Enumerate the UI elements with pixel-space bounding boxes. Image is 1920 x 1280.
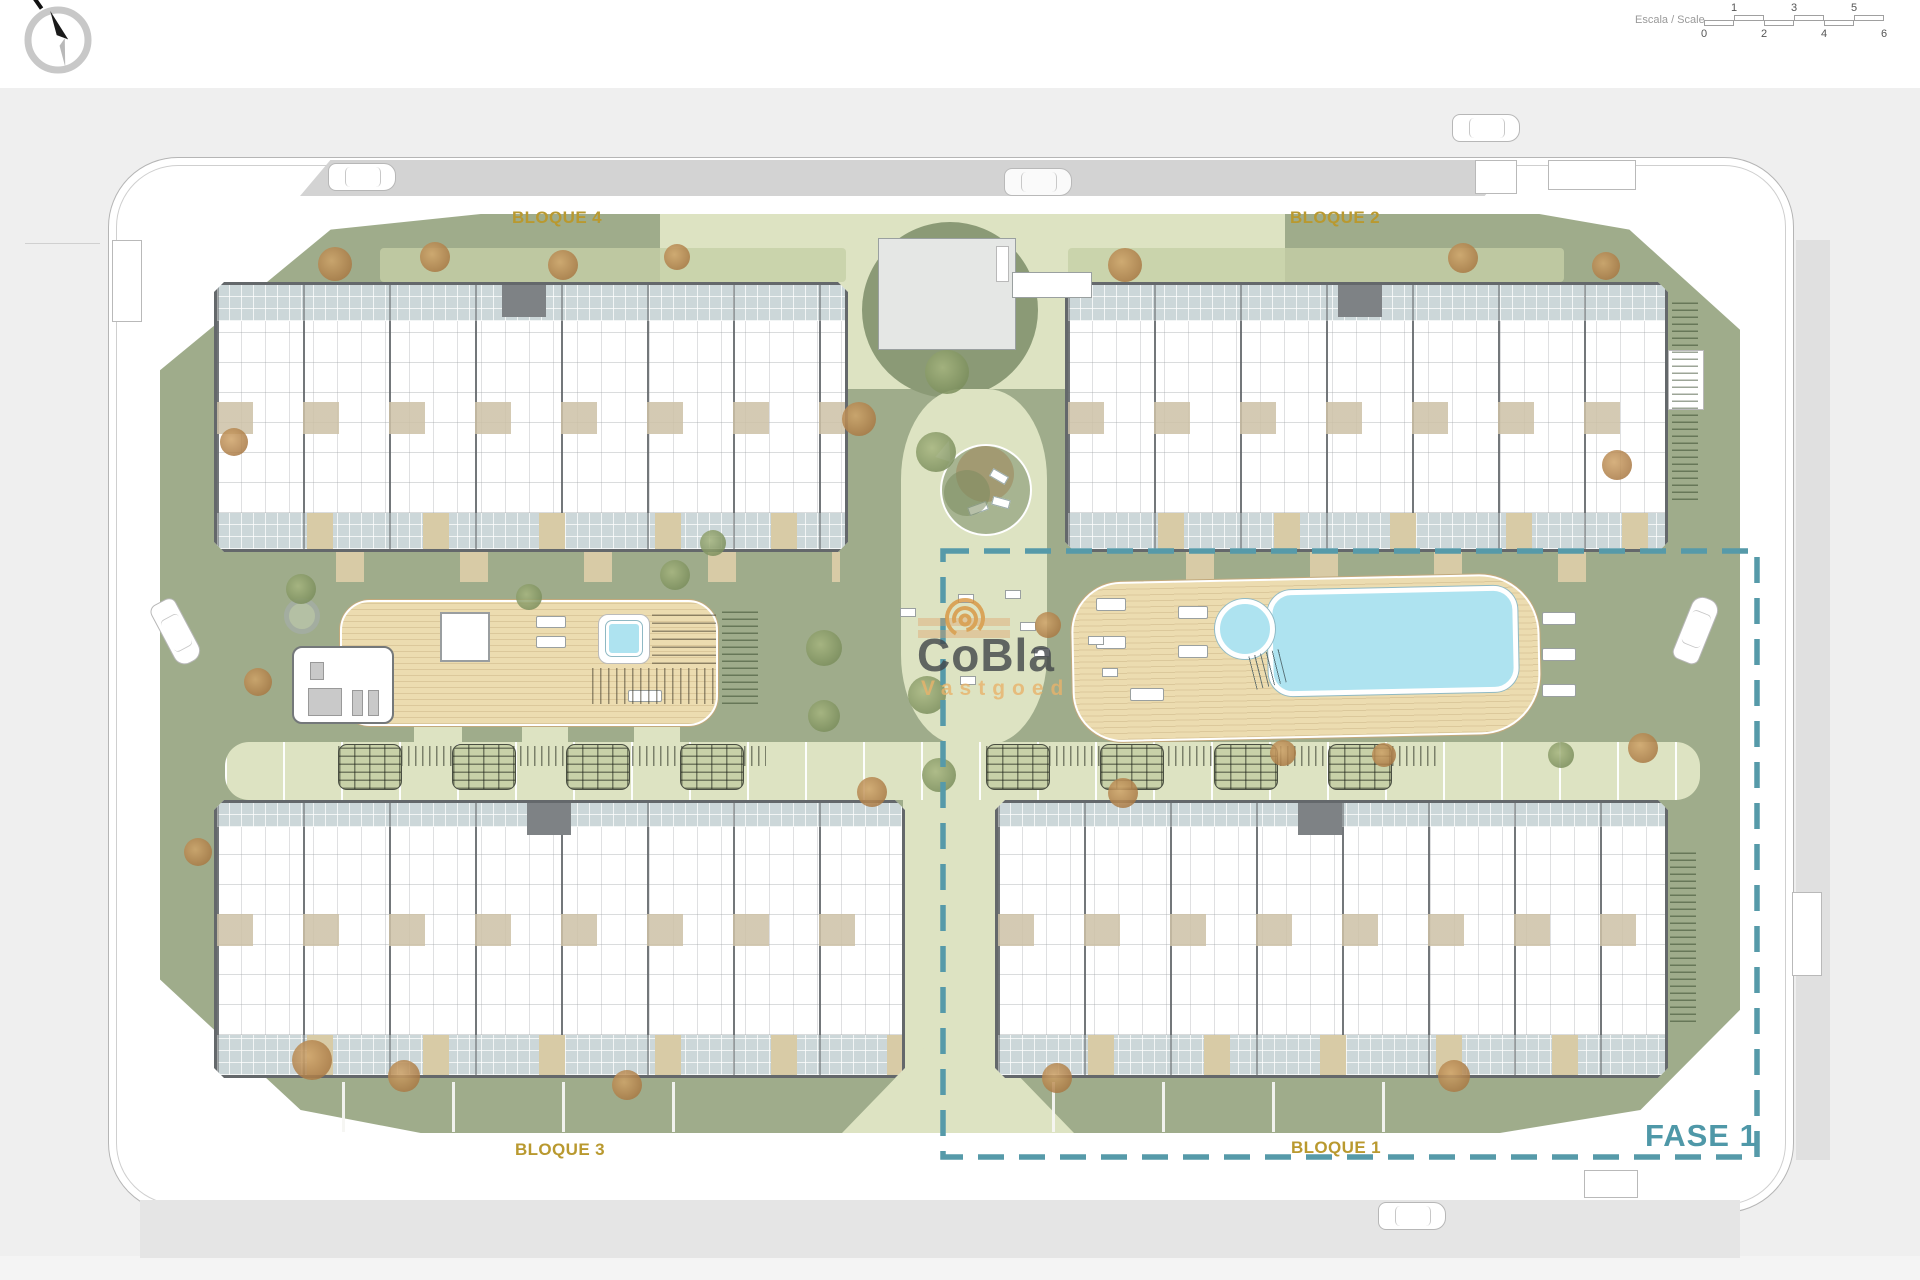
block-label-bloque-4: BLOQUE 4 [472,208,642,228]
watermark-subtitle: Vastgoed [921,678,1070,699]
fase-label: FASE 1 [1645,1118,1758,1154]
block-label-bloque-2: BLOQUE 2 [1250,208,1420,228]
watermark-brand: CoBla [917,632,1055,678]
block-label-bloque-3: BLOQUE 3 [475,1140,645,1160]
watermark-logo: CoBla Vastgoed [895,588,1115,688]
site-plan: Escala / Scale 1 3 5 0 2 4 6 [0,0,1920,1280]
block-label-bloque-1: BLOQUE 1 [1251,1138,1421,1158]
